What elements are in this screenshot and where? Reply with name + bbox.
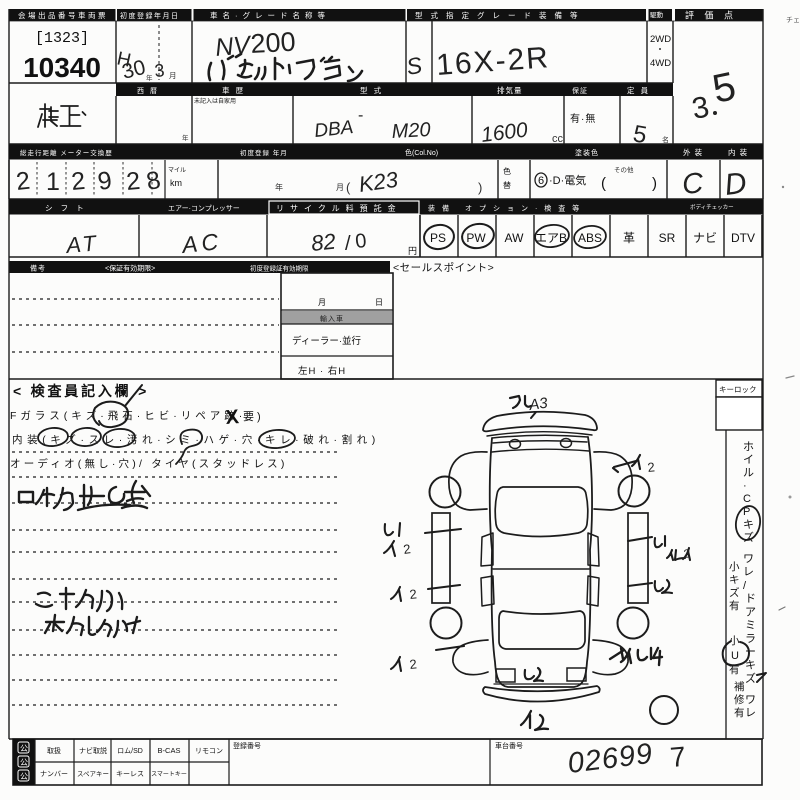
svg-text:オーディオ(無し·穴)/ タイヤ(スタッドレス): オーディオ(無し·穴)/ タイヤ(スタッドレス) — [10, 457, 288, 470]
svg-text:円: 円 — [408, 246, 417, 256]
svg-text:200: 200 — [250, 27, 297, 59]
svg-text:NV: NV — [214, 31, 253, 62]
svg-text:革: 革 — [623, 231, 635, 245]
svg-text:要): 要) — [243, 410, 264, 423]
svg-text:AW: AW — [505, 231, 525, 245]
svg-text:小: 小 — [729, 561, 740, 573]
svg-text:排気量: 排気量 — [497, 85, 523, 95]
svg-text:キーロック: キーロック — [719, 385, 757, 394]
svg-text:ズ: ズ — [745, 671, 756, 685]
svg-text:駆動: 駆動 — [650, 10, 664, 19]
svg-text:レ: レ — [743, 566, 754, 578]
svg-text:その他: その他 — [614, 165, 634, 174]
svg-text:7: 7 — [669, 741, 687, 773]
svg-text:公: 公 — [20, 758, 28, 767]
svg-text:ABS: ABS — [578, 231, 602, 245]
svg-text:修: 修 — [734, 693, 745, 706]
svg-text:公: 公 — [20, 744, 28, 753]
svg-text:2WD: 2WD — [650, 34, 671, 45]
svg-text:車台番号: 車台番号 — [495, 741, 523, 750]
svg-text:): ) — [652, 175, 657, 192]
svg-text:PW: PW — [466, 231, 486, 245]
svg-text:日: 日 — [375, 298, 383, 307]
svg-text:登録番号: 登録番号 — [233, 741, 261, 750]
svg-text:西 暦: 西 暦 — [137, 87, 159, 95]
svg-text:キーレス: キーレス — [116, 770, 144, 778]
svg-text:ワ: ワ — [745, 694, 756, 706]
svg-text:年: 年 — [146, 73, 153, 82]
svg-text:総走行距離 メーター交換歴: 総走行距離 メーター交換歴 — [20, 148, 113, 157]
svg-text:保証: 保証 — [572, 86, 588, 95]
svg-text:初度登録 年月: 初度登録 年月 — [240, 148, 288, 157]
svg-text:·D·電気: ·D·電気 — [549, 173, 586, 187]
svg-text:2: 2 — [70, 167, 86, 196]
svg-text:外 装: 外 装 — [683, 147, 703, 157]
svg-text:< 検査員記入欄 >: < 検査員記入欄 > — [13, 383, 149, 399]
svg-text:PS: PS — [430, 231, 446, 245]
svg-text:色(Col.No): 色(Col.No) — [405, 148, 438, 157]
svg-text:/: / — [345, 233, 351, 255]
svg-text:月: 月 — [336, 183, 344, 192]
svg-text:B-CAS: B-CAS — [158, 746, 181, 755]
svg-text:スマートキー: スマートキー — [151, 771, 187, 778]
svg-text:車 歴: 車 歴 — [222, 85, 245, 95]
svg-text:マイル: マイル — [168, 167, 186, 174]
svg-text:有: 有 — [734, 706, 745, 719]
svg-text:ボディチェッカー: ボディチェッカー — [690, 203, 734, 211]
svg-text:SR: SR — [659, 231, 676, 245]
svg-text:年: 年 — [275, 182, 283, 192]
svg-text:塗装色: 塗装色 — [575, 148, 599, 157]
svg-text:備考: 備考 — [30, 264, 46, 273]
svg-text:キ: キ — [729, 574, 740, 586]
svg-text:ディーラー·並行: ディーラー·並行 — [292, 335, 361, 347]
svg-text:有: 有 — [729, 599, 740, 612]
svg-text:シ フ ト: シ フ ト — [45, 204, 87, 213]
svg-text:ロム/SD: ロム/SD — [117, 747, 143, 755]
svg-text:ー: ー — [745, 646, 756, 658]
svg-text:DTV: DTV — [731, 231, 755, 245]
svg-text:型式指定グレード装備等: 型式指定グレード装備等 — [415, 10, 586, 20]
svg-text:内 装: 内 装 — [728, 147, 748, 157]
svg-text:エアB: エアB — [535, 231, 567, 245]
svg-text:-: - — [358, 107, 363, 124]
svg-text:1: 1 — [46, 168, 60, 196]
svg-text:A3: A3 — [527, 394, 549, 414]
svg-text:チェ: チェ — [786, 16, 800, 24]
svg-text:月: 月 — [318, 298, 326, 307]
svg-text:初度登録証有効期限: 初度登録証有効期限 — [250, 264, 309, 273]
svg-text:左H · 右H: 左H · 右H — [298, 365, 346, 377]
svg-text:リサイクル料預託金: リサイクル料預託金 — [276, 203, 402, 213]
svg-text:定 員: 定 員 — [627, 85, 650, 95]
svg-text:ナンバー: ナンバー — [40, 770, 68, 778]
svg-text:初度登録年月日: 初度登録年月日 — [120, 11, 180, 20]
svg-text:輸入車: 輸入車 — [320, 314, 344, 323]
svg-text:年: 年 — [182, 133, 189, 142]
svg-text:<セールスポイント>: <セールスポイント> — [393, 262, 494, 274]
svg-text:km: km — [170, 178, 182, 188]
svg-text:X: X — [225, 406, 241, 429]
svg-text:車名·グレード名称等: 車名·グレード名称等 — [210, 10, 330, 20]
svg-text:6: 6 — [538, 175, 544, 187]
svg-text:D: D — [723, 167, 749, 202]
svg-text:キ: キ — [743, 519, 754, 531]
svg-text:DBA: DBA — [313, 117, 354, 142]
svg-text:C: C — [743, 493, 751, 505]
svg-text:スペアキー: スペアキー — [77, 770, 109, 778]
svg-text:ナビ取説: ナビ取説 — [79, 746, 107, 755]
svg-text:ナビ: ナビ — [693, 231, 717, 245]
svg-text:10340: 10340 — [23, 52, 101, 83]
svg-text:(: ( — [601, 175, 606, 192]
svg-text:<保証有効期限>: <保証有効期限> — [105, 264, 155, 273]
svg-text:イ: イ — [743, 454, 754, 466]
svg-text:ド: ド — [745, 593, 756, 605]
svg-text:C: C — [681, 167, 706, 201]
svg-text:4WD: 4WD — [650, 58, 671, 69]
svg-text:M20: M20 — [391, 119, 431, 143]
svg-text:ズ: ズ — [729, 586, 740, 599]
svg-text:リモコン: リモコン — [195, 747, 223, 755]
svg-text:ラ: ラ — [745, 633, 756, 645]
svg-text:未記入は自家用: 未記入は自家用 — [194, 97, 236, 105]
svg-text:ル: ル — [743, 467, 754, 479]
svg-text:色: 色 — [503, 166, 511, 176]
svg-text:ズ: ズ — [743, 530, 754, 544]
svg-text:0: 0 — [354, 230, 367, 253]
svg-text:AT: AT — [63, 230, 100, 258]
svg-text:ア: ア — [745, 606, 756, 618]
svg-text:型 式: 型 式 — [360, 85, 383, 95]
svg-text:cc: cc — [552, 133, 564, 145]
svg-text:82: 82 — [310, 229, 337, 256]
svg-text:ワ: ワ — [743, 553, 754, 565]
svg-text:U: U — [731, 650, 739, 662]
svg-text:[1323]: [1323] — [35, 30, 89, 47]
svg-text:ホ: ホ — [743, 440, 754, 453]
svg-text:名: 名 — [662, 135, 669, 144]
svg-text:2: 2 — [15, 167, 32, 196]
svg-text:有·無: 有·無 — [570, 112, 596, 125]
svg-text:): ) — [478, 180, 482, 195]
svg-text:会場出品番号車両票: 会場出品番号車両票 — [18, 10, 108, 20]
svg-text:ミ: ミ — [745, 620, 756, 632]
svg-text:AC: AC — [179, 228, 223, 258]
svg-text:評 価 点: 評 価 点 — [685, 10, 737, 21]
svg-text:2: 2 — [125, 167, 141, 196]
svg-text:取扱: 取扱 — [47, 746, 61, 755]
svg-text:·: · — [743, 480, 747, 492]
svg-text:レ: レ — [745, 707, 756, 719]
svg-text:エアー·コンプレッサー: エアー·コンプレッサー — [168, 205, 240, 213]
svg-text:3: 3 — [154, 60, 166, 81]
svg-text:月: 月 — [169, 71, 177, 80]
svg-text:装備 オプション·検査等: 装備 オプション·検査等 — [428, 204, 586, 213]
svg-text:(: ( — [346, 180, 351, 195]
svg-text:公: 公 — [20, 772, 28, 781]
svg-text:替: 替 — [503, 180, 511, 190]
svg-text:補: 補 — [734, 680, 745, 693]
